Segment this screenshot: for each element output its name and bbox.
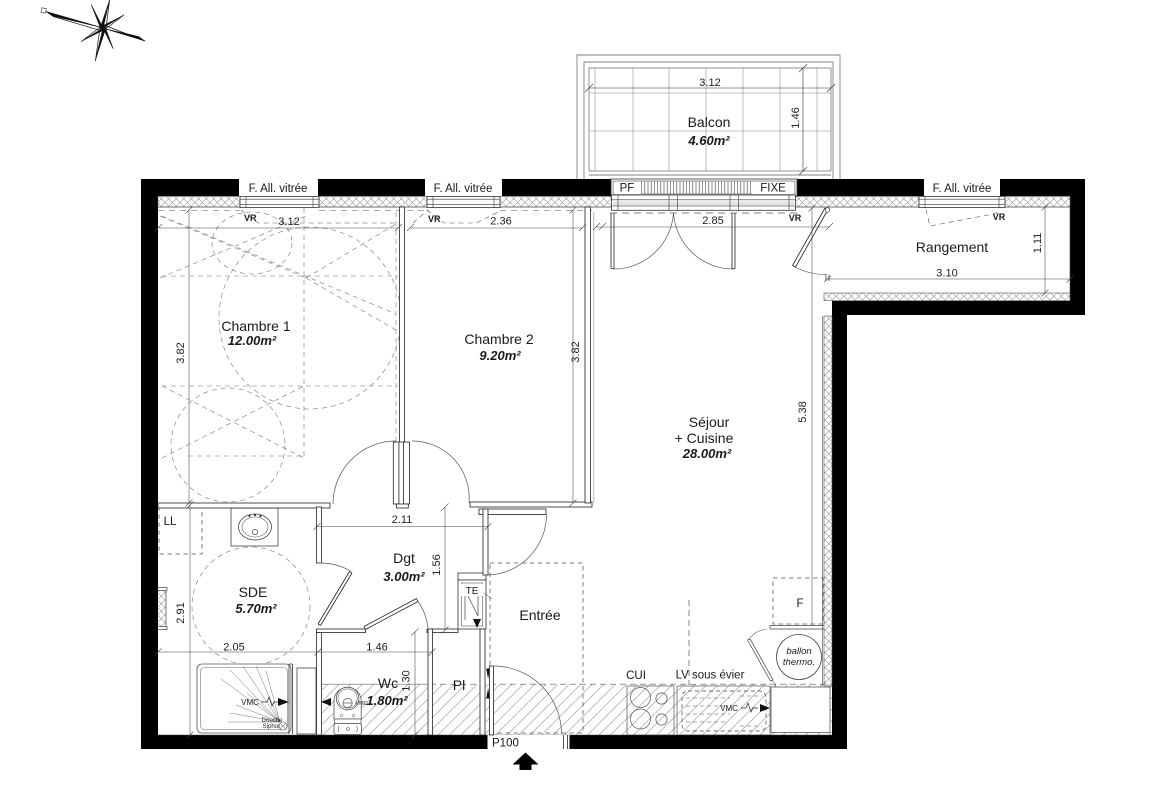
svg-text:TE: TE [466, 586, 479, 597]
svg-text:1.11: 1.11 [1032, 233, 1044, 254]
svg-text:VMC: VMC [241, 698, 259, 707]
svg-text:5.70m²: 5.70m² [235, 601, 277, 616]
svg-text:3.12: 3.12 [278, 216, 299, 228]
svg-text:12.00m²: 12.00m² [228, 333, 277, 348]
svg-text:VR: VR [789, 213, 802, 223]
svg-text:Séjour: Séjour [689, 414, 730, 430]
svg-text:1.30: 1.30 [401, 670, 413, 691]
svg-text:FIXE: FIXE [760, 183, 786, 195]
svg-text:F. All. vitrée: F. All. vitrée [249, 183, 308, 195]
svg-text:3.00m²: 3.00m² [383, 569, 425, 584]
svg-text:28.00m²: 28.00m² [682, 446, 732, 461]
svg-text:P100: P100 [492, 738, 519, 750]
svg-text:PF: PF [620, 183, 635, 195]
svg-text:3.10: 3.10 [936, 268, 957, 280]
svg-text:Rangement: Rangement [916, 239, 988, 255]
svg-text:CUI: CUI [626, 670, 646, 682]
svg-text:Balcon: Balcon [688, 114, 731, 130]
svg-text:2.85: 2.85 [702, 215, 723, 227]
svg-text:3.82: 3.82 [570, 341, 582, 362]
svg-text:5.38: 5.38 [797, 401, 809, 422]
svg-text:Wc: Wc [378, 675, 398, 691]
svg-text:F: F [796, 598, 803, 610]
svg-text:2.91: 2.91 [175, 602, 187, 623]
svg-text:LL: LL [164, 516, 177, 528]
svg-text:4.60m²: 4.60m² [687, 133, 730, 148]
svg-text:3.82: 3.82 [175, 342, 187, 363]
svg-text:VR: VR [993, 212, 1006, 222]
svg-text:1.46: 1.46 [790, 107, 802, 128]
svg-text:Entrée: Entrée [519, 607, 560, 623]
svg-text:LV sous évier: LV sous évier [676, 670, 745, 682]
svg-text:VR: VR [428, 214, 441, 224]
svg-text:SDE: SDE [239, 584, 268, 600]
svg-text:ballon: ballon [786, 646, 811, 657]
svg-text:2.36: 2.36 [490, 216, 511, 228]
svg-text:9.20m²: 9.20m² [479, 348, 521, 363]
svg-text:VR: VR [244, 213, 257, 223]
svg-text:Pl: Pl [453, 677, 465, 693]
svg-text:VMC: VMC [720, 704, 738, 713]
svg-text:+ Cuisine: + Cuisine [675, 430, 734, 446]
svg-text:1.56: 1.56 [431, 554, 443, 575]
svg-text:Siphon: Siphon [263, 724, 282, 730]
svg-text:F. All. vitrée: F. All. vitrée [933, 183, 992, 195]
svg-text:3.12: 3.12 [699, 77, 720, 89]
svg-text:1.46: 1.46 [366, 642, 387, 654]
svg-text:2.11: 2.11 [392, 514, 413, 526]
svg-text:1.80m²: 1.80m² [366, 693, 408, 708]
svg-text:Chambre 1: Chambre 1 [221, 318, 290, 334]
svg-text:2.05: 2.05 [223, 642, 244, 654]
svg-text:Dgt: Dgt [393, 550, 415, 566]
svg-text:Chambre 2: Chambre 2 [464, 331, 533, 347]
svg-text:thermo.: thermo. [783, 657, 815, 668]
svg-text:F. All. vitrée: F. All. vitrée [434, 183, 493, 195]
